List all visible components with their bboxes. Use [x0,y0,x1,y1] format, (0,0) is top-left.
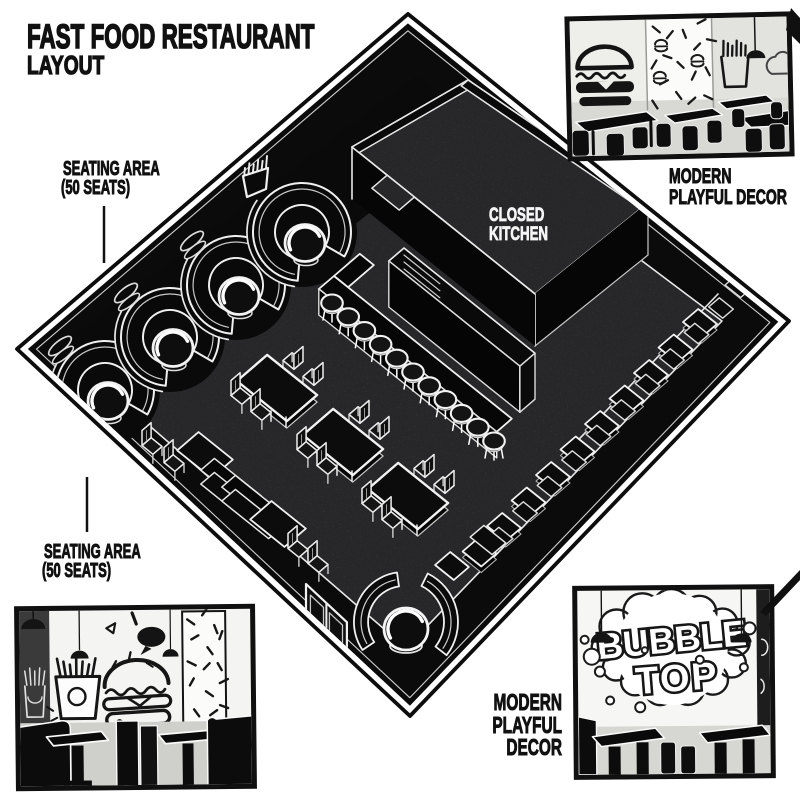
svg-text:CLOSED: CLOSED [489,205,544,226]
svg-text:KITCHEN: KITCHEN [489,224,548,245]
svg-text:LAYOUT: LAYOUT [27,50,104,80]
svg-text:(50 SEATS): (50 SEATS) [42,559,111,582]
svg-text:MODERN: MODERN [494,690,562,716]
svg-text:TOP: TOP [634,655,720,703]
svg-text:DECOR: DECOR [506,735,562,761]
svg-text:MODERN: MODERN [669,164,731,187]
svg-text:PLAYFUL DECOR: PLAYFUL DECOR [669,185,787,208]
svg-text:(50 SEATS): (50 SEATS) [61,176,130,199]
